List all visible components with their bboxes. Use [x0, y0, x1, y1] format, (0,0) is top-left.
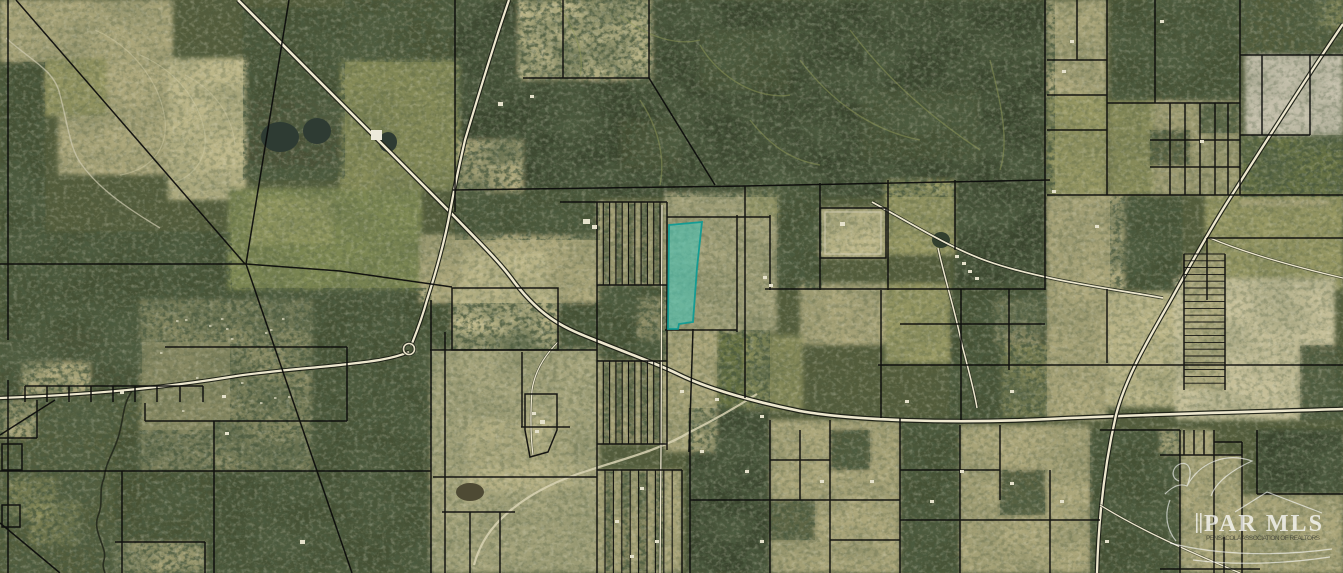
svg-text:PENSACOLA ASSOCIATION OF REALT: PENSACOLA ASSOCIATION OF REALTORS: [1206, 535, 1321, 542]
svg-text:PAR MLS: PAR MLS: [1204, 511, 1322, 537]
